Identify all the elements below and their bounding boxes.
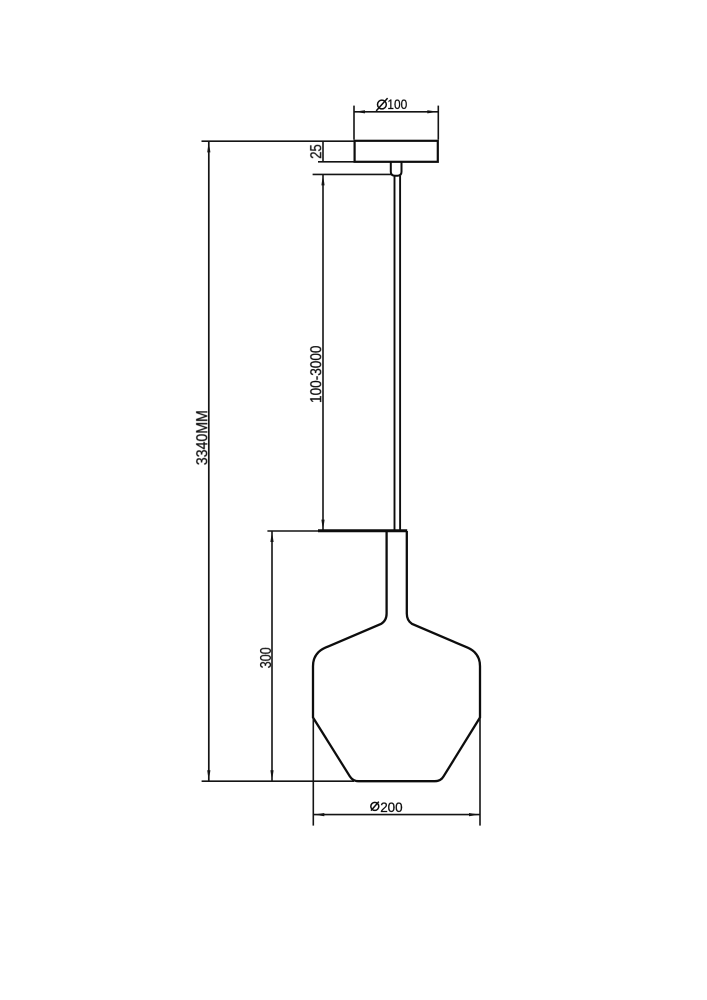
svg-text:100: 100 xyxy=(387,97,407,112)
svg-text:200: 200 xyxy=(380,800,403,815)
